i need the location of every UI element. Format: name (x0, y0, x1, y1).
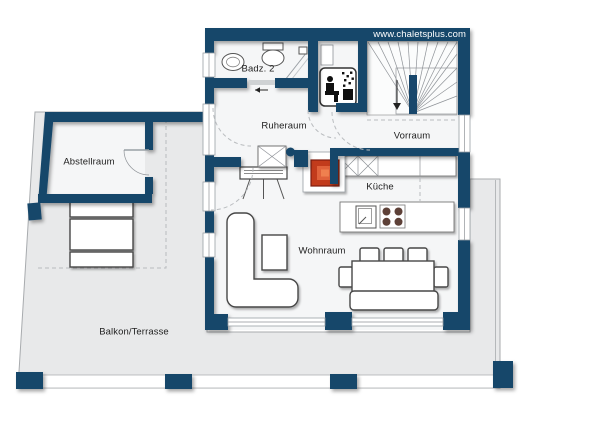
room-label-wohnraum: Wohnraum (298, 246, 345, 257)
kitchen-wall (330, 148, 460, 156)
room-label-vorraum: Vorraum (394, 131, 431, 142)
railing-post (27, 202, 41, 220)
room-label-badz2: Badz. 2 (242, 64, 275, 75)
floor-plan: www.chaletsplus.com Badz. 2 Ruheraum Vor… (0, 0, 600, 425)
abstellraum-bottom-wall (38, 194, 152, 203)
railing-post (330, 374, 357, 389)
wall-stub (294, 150, 308, 167)
bench (70, 202, 133, 217)
ruheraum-wall (214, 157, 241, 167)
railing-corner-post (493, 361, 513, 388)
bath-wall (275, 78, 313, 88)
terrace-bench-set (70, 202, 133, 267)
kitchen-cabinet-row (338, 156, 456, 176)
shower-head (299, 47, 307, 54)
room-label-abstellraum: Abstellraum (63, 157, 114, 168)
sauna-right-wall (358, 41, 367, 112)
room-label-balkon: Balkon/Terrasse (99, 327, 169, 338)
column (286, 148, 295, 157)
abstellraum-right-wall (145, 122, 153, 150)
kitchen-wall-stub (330, 148, 338, 184)
dining-table (352, 261, 434, 293)
terrace-railing-band (18, 375, 497, 388)
sliding-door (249, 80, 275, 85)
dining-bench (350, 291, 438, 310)
bench (70, 252, 133, 267)
floor-plan-drawing (0, 0, 600, 425)
room-label-kueche: Küche (366, 182, 393, 193)
sauna-left-wall (308, 41, 318, 112)
chair (339, 267, 353, 287)
wood-stove (303, 152, 345, 192)
chair (434, 267, 448, 287)
staircase (367, 41, 457, 120)
bath-wall (213, 78, 247, 88)
railing-post (16, 372, 43, 389)
stair-newel-wall (409, 75, 417, 114)
abstellraum-right-wall (145, 177, 153, 194)
table (70, 219, 133, 250)
coffee-table (262, 235, 287, 270)
abstellraum-top-wall (45, 112, 207, 122)
watermark: www.chaletsplus.com (373, 29, 466, 40)
toilet-tank (263, 43, 283, 50)
railing-post (165, 374, 192, 389)
room-label-ruheraum: Ruheraum (261, 121, 306, 132)
